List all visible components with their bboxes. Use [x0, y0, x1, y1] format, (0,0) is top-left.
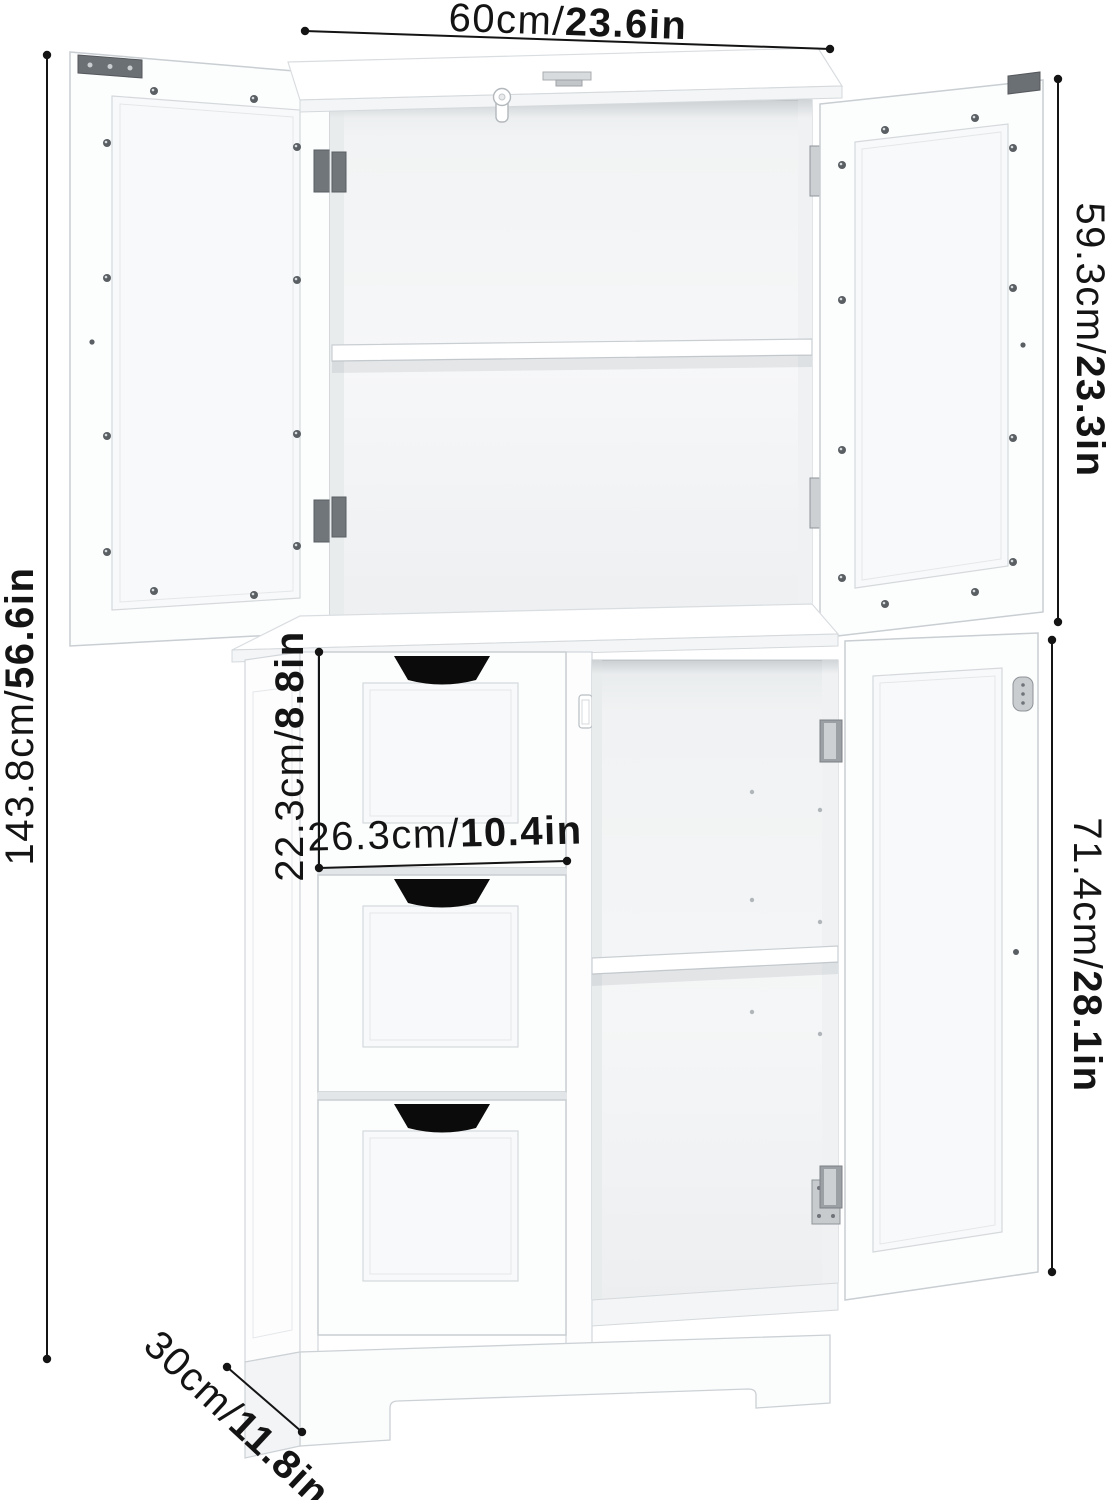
drawer-2 [318, 875, 566, 1092]
product-dimension-image: 60cm/23.6in 59.3cm/23.3in 143.8cm/56.6in… [0, 0, 1110, 1500]
cabinet-diagram-svg: 60cm/23.6in 59.3cm/23.3in 143.8cm/56.6in… [0, 0, 1110, 1500]
door-catch-pill-icon [1013, 677, 1033, 711]
lower-right-door [820, 633, 1038, 1300]
door-top-plate [1008, 72, 1040, 94]
hinge-icon [314, 500, 330, 542]
keyhole-hanger-icon [494, 89, 511, 123]
dim-width-top-label: 60cm/23.6in [448, 0, 688, 48]
hinge-icon [820, 1166, 842, 1208]
hinge-icon [314, 150, 330, 192]
dim-overall-height-label: 143.8cm/56.6in [0, 567, 42, 866]
dim-drawer-height-label: 22.3cm/8.8in [268, 630, 312, 881]
lower-compartment [592, 660, 838, 1310]
dim-drawer-width-label: 26.3cm/10.4in [307, 808, 583, 859]
hinge-icon [332, 497, 346, 537]
upper-right-door [810, 72, 1043, 638]
dim-lower-height-label: 71.4cm/28.1in [1065, 817, 1109, 1092]
upper-left-door [70, 52, 330, 646]
dim-upper-height-label: 59.3cm/23.3in [1068, 202, 1110, 477]
hinge-icon [332, 152, 346, 192]
upper-cabinet [288, 48, 842, 630]
drawer-3 [318, 1100, 566, 1335]
center-divider [566, 652, 592, 1352]
hinge-icon [820, 720, 842, 762]
